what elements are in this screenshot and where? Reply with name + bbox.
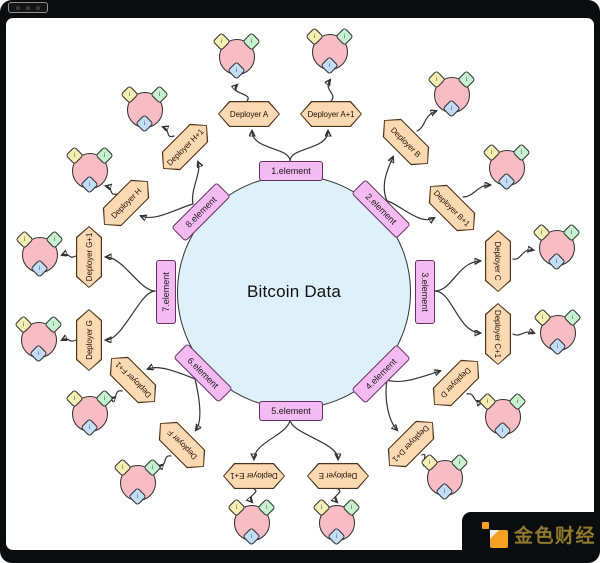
- cluster-icon-b: iii: [429, 72, 475, 120]
- cluster-icon-c: iii: [534, 225, 580, 273]
- chip-glyph: [26, 6, 30, 10]
- center-node-label: Bitcoin Data: [247, 282, 341, 302]
- watermark: 金色财经: [462, 512, 594, 557]
- deployer-node-g1: Deployer G+1: [76, 226, 102, 288]
- element-node-3: 3.element: [415, 260, 435, 324]
- cluster-icon-b1: iii: [484, 145, 530, 193]
- cluster-icon-h: iii: [67, 148, 113, 196]
- element-node-5: 5.element: [259, 401, 323, 421]
- cluster-icon-d: iii: [480, 394, 526, 442]
- cluster-icon-c1: iii: [535, 310, 581, 358]
- cluster-icon-a: iii: [214, 34, 260, 82]
- screenshot-frame: Bitcoin Data: [0, 0, 600, 563]
- deployer-node-g: Deployer G: [76, 309, 102, 371]
- cluster-icon-a1: iii: [307, 29, 353, 77]
- chip-glyph: [36, 6, 40, 10]
- cluster-icon-f1: iii: [67, 391, 113, 439]
- cluster-icon-d1: iii: [422, 455, 468, 503]
- deployer-node-c: Deployer C: [485, 230, 511, 292]
- deployer-node-e: Deployer E: [307, 463, 369, 489]
- element-node-1: 1.element: [259, 161, 323, 181]
- cluster-icon-e1: iii: [229, 500, 275, 548]
- deployer-node-e1: Deployer E+1: [223, 463, 285, 489]
- deployer-node-a1: Deployer A+1: [300, 101, 362, 127]
- jinse-finance-logo-icon: [482, 522, 508, 548]
- deployer-node-c1: Deployer C+1: [485, 303, 511, 365]
- watermark-text: 金色财经: [514, 521, 596, 548]
- element-node-7: 7.element: [156, 260, 176, 324]
- deployer-node-a: Deployer A: [218, 101, 280, 127]
- cluster-icon-f: iii: [115, 460, 161, 508]
- cluster-icon-g1: iii: [17, 232, 63, 280]
- chip-glyph: [16, 6, 20, 10]
- cluster-icon-e: iii: [314, 500, 360, 548]
- cluster-icon-h1: iii: [122, 87, 168, 135]
- titlebar-widget: [8, 2, 48, 13]
- cluster-icon-g: iii: [16, 317, 62, 365]
